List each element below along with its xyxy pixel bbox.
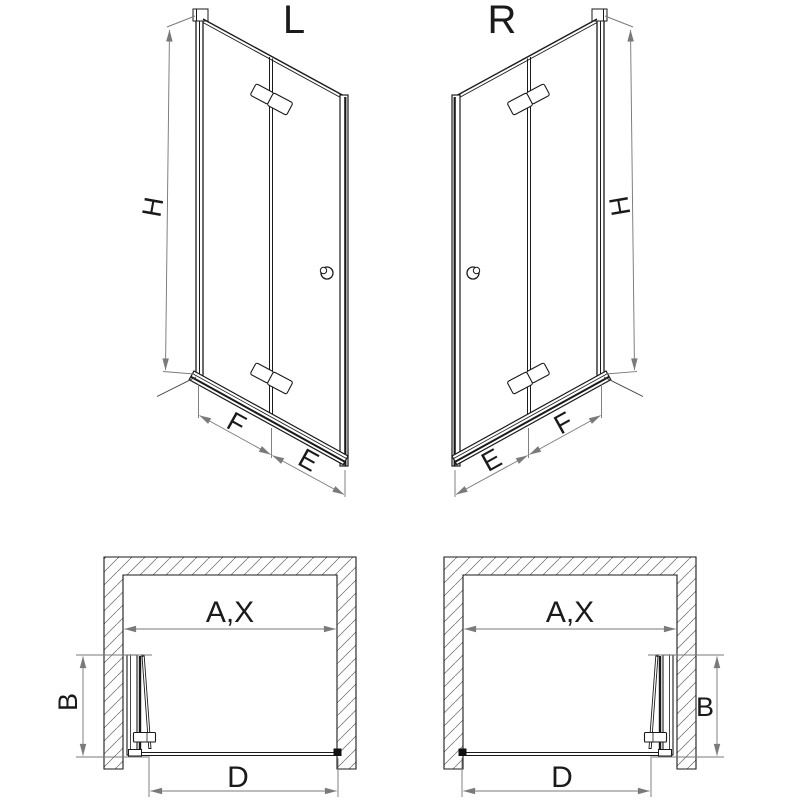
iso-door-left-view [157,9,348,497]
fold-hinge-bottom [250,363,293,395]
fold-depth-label-left: B [53,693,83,711]
height-dim-label-left: H [137,195,170,219]
diagram-canvas: L R H H F E E F A,X A,X B B D D [0,0,800,800]
iso-door-right-view [452,9,643,497]
folded-door-package [127,654,156,756]
width-dim-label-right: A,X [546,596,594,629]
wall-profile [193,9,208,378]
right-version-label: R [488,0,517,42]
width-dim-label-left: A,X [206,596,254,629]
entry-dim-label-right: D [551,761,573,794]
panel-f-label-left: F [222,406,251,440]
panel-e-label-right: E [476,443,506,478]
panel-f-label-right: F [549,406,578,440]
door-knob [320,267,333,279]
height-dim-label-right: H [604,194,637,218]
diagram-page: L R H H F E E F A,X A,X B B D D [0,0,800,800]
height-dimension [163,16,195,374]
left-version-label: L [283,0,305,42]
threshold-rail [137,749,342,757]
panel-fold-line [270,57,273,414]
entry-dim-label-left: D [227,761,249,794]
floor-line [157,377,196,397]
panel-width-dimensions [199,384,346,497]
fold-depth-label-right: B [696,692,714,722]
glass-top-edge [203,19,346,101]
fold-hinge-top [250,84,293,116]
door-side-frame [340,95,348,466]
panel-e-label-left: E [293,443,323,478]
